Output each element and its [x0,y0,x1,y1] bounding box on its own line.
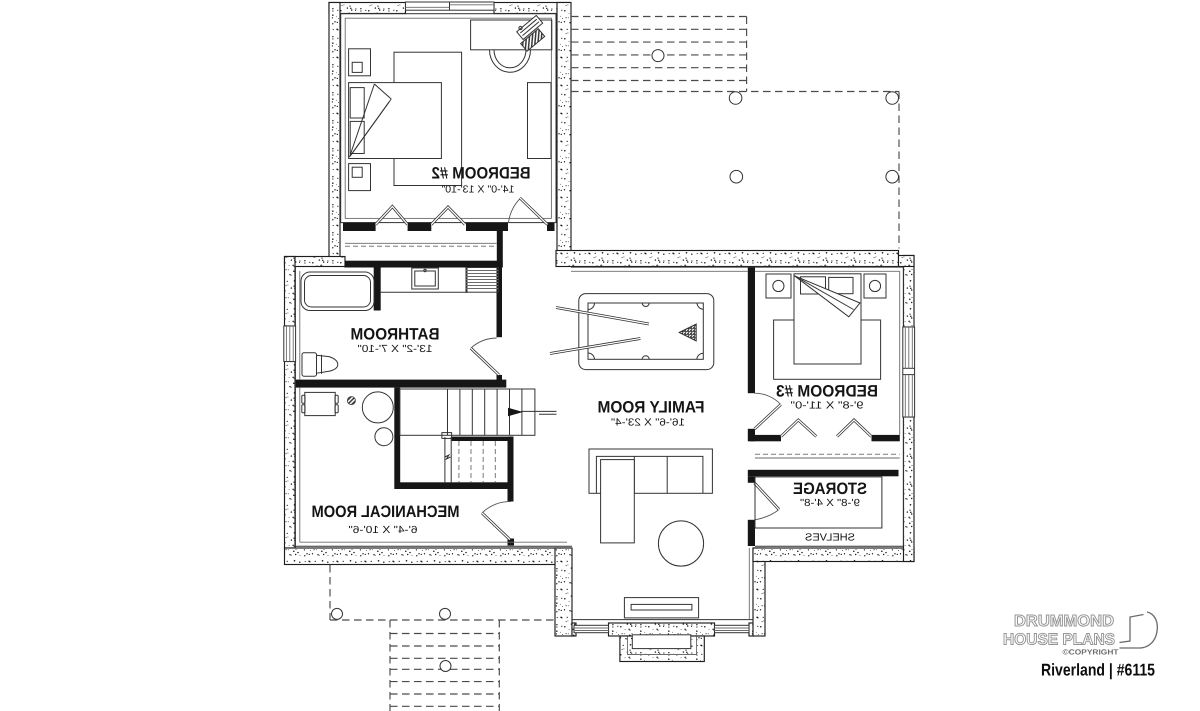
svg-text:FAMILY ROOM: FAMILY ROOM [598,399,705,417]
svg-text:14'-0" X 13'-10": 14'-0" X 13'-10" [441,185,514,196]
svg-text:SHELVES: SHELVES [805,533,855,544]
svg-text:Riverland | #6115: Riverland | #6115 [1041,661,1155,680]
svg-text:9'-8" X 4'-8": 9'-8" X 4'-8" [800,498,860,509]
svg-text:6'-4" X 10'-6": 6'-4" X 10'-6" [348,525,417,536]
svg-text:9'-8" X 11'-0": 9'-8" X 11'-0" [790,401,863,412]
svg-text:BEDROOM #2: BEDROOM #2 [432,165,531,183]
svg-text:©COPYRIGHT: ©COPYRIGHT [1063,648,1119,657]
svg-text:13'-2" X 7'-10": 13'-2" X 7'-10" [357,344,432,355]
svg-text:BATHROOM: BATHROOM [351,326,440,344]
svg-text:16'-6" X 23'-4": 16'-6" X 23'-4" [611,418,685,429]
svg-text:STORAGE: STORAGE [793,480,867,498]
svg-text:DRUMMOND: DRUMMOND [1014,613,1114,630]
svg-text:MECHANICAL ROOM: MECHANICAL ROOM [312,503,460,521]
svg-text:BEDROOM #3: BEDROOM #3 [776,383,878,401]
svg-text:HOUSE PLANS: HOUSE PLANS [1003,632,1115,649]
